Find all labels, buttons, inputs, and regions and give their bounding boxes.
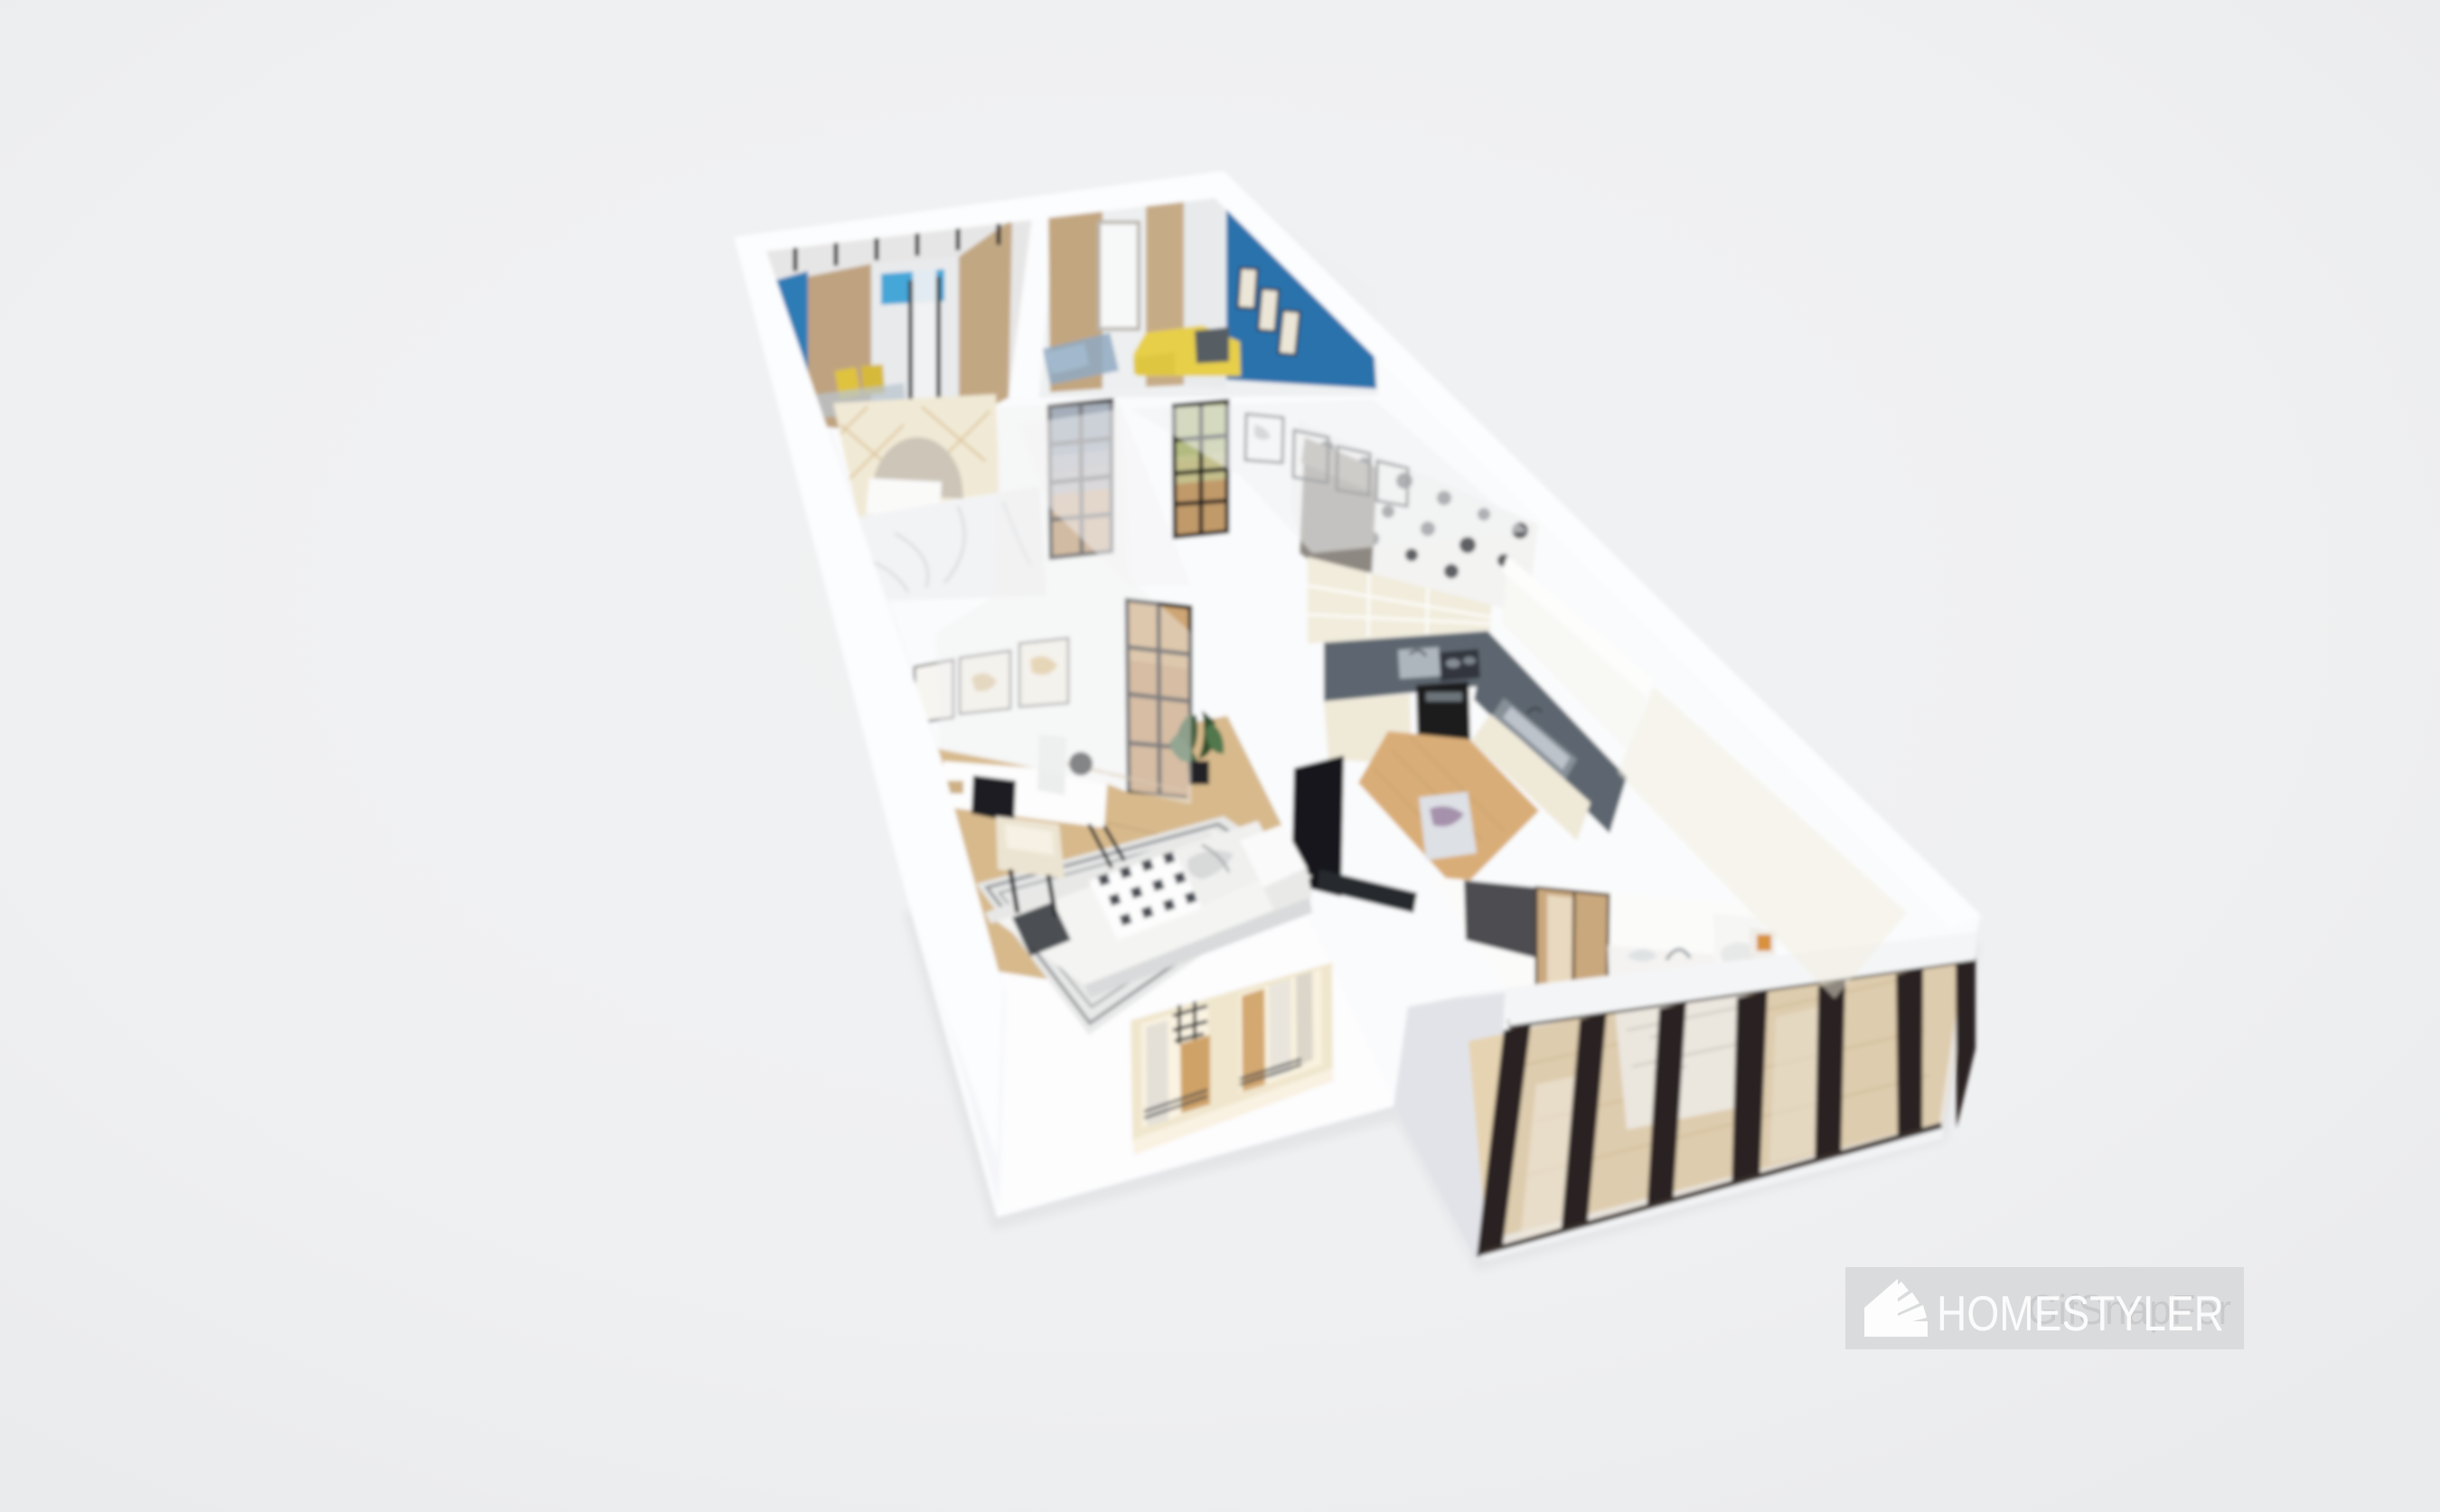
svg-text:HOMESTYLER: HOMESTYLER [1937,1285,2224,1341]
